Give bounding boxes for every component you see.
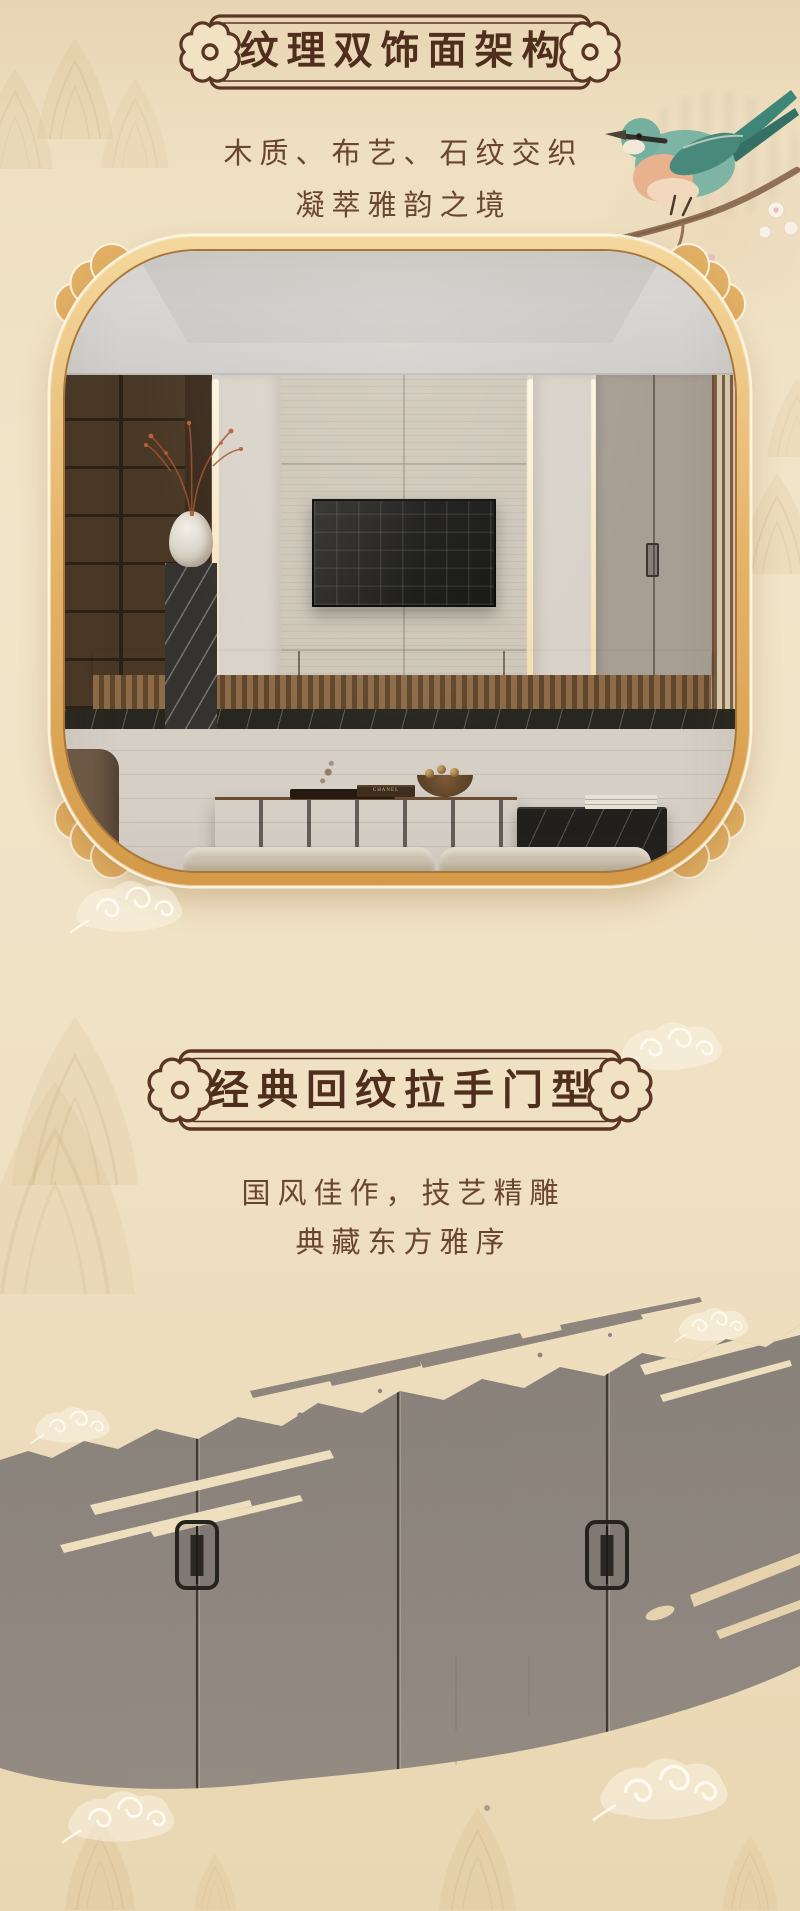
room-tv-screen (312, 499, 496, 607)
room-armchair (63, 749, 119, 871)
room-book: CHANEL (357, 785, 415, 797)
walnut (425, 769, 434, 778)
walnut (437, 765, 446, 774)
room-stone-seam (281, 463, 527, 465)
room-wood-partition (712, 375, 737, 709)
room-branch-arrangement (131, 411, 261, 521)
section1-subtitle-line1: 木质、布艺、石纹交织 (0, 130, 800, 172)
section2-subtitle-line2: 典藏东方雅序 (0, 1219, 800, 1261)
door-handle-left (177, 1522, 217, 1588)
section1-subtitle-line2: 凝萃雅韵之境 (0, 182, 800, 224)
section1-title: 纹理双饰面架构 (180, 12, 620, 92)
room-cabinet-handle (646, 543, 659, 577)
living-room-photo: CHANEL (63, 249, 737, 873)
room-book-stack (585, 795, 657, 809)
walnut (450, 768, 459, 777)
room-sofa-cushion (439, 847, 651, 871)
section2-title: 经典回纹拉手门型 (147, 1046, 653, 1134)
room-ceiling-tray (135, 251, 665, 343)
room-sofa-cushion (183, 847, 435, 871)
promo-page: 纹理双饰面架构 木质、布艺、石纹交织 凝萃雅韵之境 (0, 0, 800, 1911)
brush-stroke-reveal (0, 1295, 800, 1855)
door-handle-right (587, 1522, 627, 1588)
living-room-frame: CHANEL (50, 236, 750, 886)
room-marble-pedestal (165, 563, 217, 729)
section2-subtitle-line1: 国风佳作，技艺精雕 (0, 1170, 800, 1212)
room-speckled-vase (315, 755, 339, 793)
section1-title-badge: 纹理双饰面架构 (180, 12, 620, 92)
section2-title-badge: 经典回纹拉手门型 (147, 1046, 653, 1134)
cloud-motif (66, 866, 191, 939)
cabinet-doors-illustration (0, 1295, 800, 1855)
